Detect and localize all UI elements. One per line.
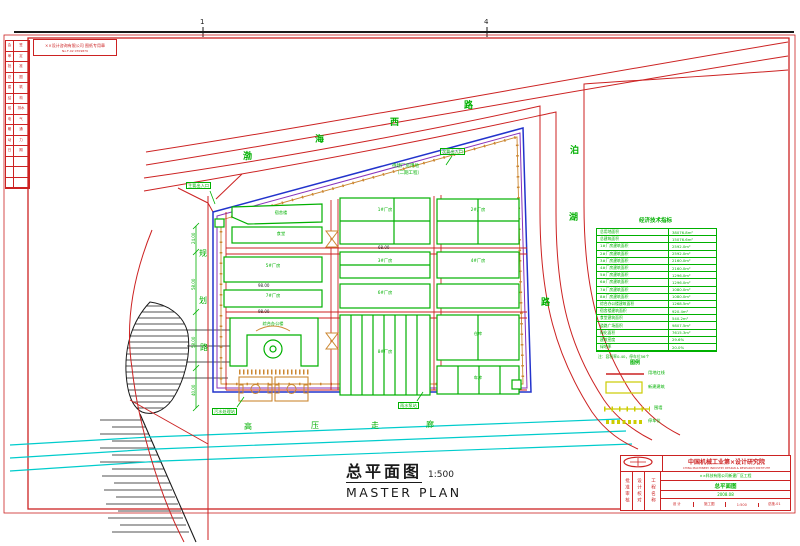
company-name: 中国机械工业第×设计研究院 [688,457,765,466]
rev-cell [14,167,29,177]
econ-row: 绿化面积7615.3m² [597,330,716,337]
meta-cell: 1:500 [726,503,759,507]
company-logo [621,456,663,471]
building-label-b5: 5#厂房 [266,264,281,268]
meta-cell: 总施-01 [759,502,791,507]
title-block: 中国机械工业第×设计研究院 CHINA MACHINERY INDUSTRY D… [620,455,791,511]
econ-row: 总建筑面积15076.6m² [597,236,716,243]
revision-row: 会签 [6,41,29,52]
dim-value: 58.00 [192,279,196,290]
road-name-char: 西 [390,119,399,128]
revision-table: 会签 审定 批准 总图 建筑 结构 给排水 电气 暖通 动力 日期 [5,40,30,189]
econ-label: 绿地率 [597,344,668,350]
econ-table-title: 经济技术指标 [596,219,715,225]
sewage-station-label: 污水处理站 [212,408,237,415]
revision-row: 日期 [6,146,29,157]
main-title-scale: 1:500 [428,470,454,480]
econ-table-note: 注：容积率0.40，停车位56个 [598,355,649,359]
legend-symbols [604,374,650,422]
drawing-date: 2008.08 [661,491,790,499]
road-name-char: 湖 [569,214,578,223]
rev-cell: 筑 [14,83,29,93]
corridor-char: 压 [311,422,319,430]
rev-cell: 构 [14,94,29,104]
econ-row: 7#厂房建筑面积1080.0m² [597,287,716,294]
econ-row: 绿地率20.0% [597,344,716,351]
rev-cell: 审 [6,52,14,62]
econ-row: 总用地面积38076.8m² [597,229,716,236]
rev-cell: 排水 [14,104,29,114]
rev-cell [6,157,14,167]
building-label-garage: 车库 [474,376,482,380]
road-name-char: 划 [199,297,207,305]
revision-row: 总图 [6,73,29,84]
econ-label: 1#厂房建筑面积 [597,243,668,249]
company-name-en: CHINA MACHINERY INDUSTRY DESIGN & RESEAR… [683,466,770,470]
econ-value: 2592.0m² [668,243,716,249]
rev-cell: 建 [6,83,14,93]
building-label-warehouse: 仓库 [474,332,482,336]
stamp-strip: ××设计咨询有限公司 图纸专用章 No.F-02 0709879 [33,39,117,56]
pump-station-label: 雨水泵站 [398,402,419,409]
building-label-b4: 4#厂房 [471,259,486,263]
rev-cell: 总 [6,73,14,83]
rev-cell: 期 [14,146,29,156]
title-block-header: 中国机械工业第×设计研究院 CHINA MACHINERY INDUSTRY D… [621,456,790,472]
rev-cell: 定 [14,52,29,62]
dim-value: 68.00 [378,246,389,250]
drawing-name: 总平面图 [661,481,790,491]
legend-item-label: 围墙 [654,406,662,410]
road-name-char: 泊 [570,147,579,156]
econ-label: 道路广场面积 [597,322,668,328]
drawing-sheet: 1 4 ××设计咨询有限公司 图纸专用章 No.F-02 0709879 会签 … [0,0,800,546]
econ-value: 15076.6m² [668,236,716,242]
econ-row: 5#厂房建筑面积1296.0m² [597,272,716,279]
rev-cell: 准 [14,62,29,72]
econ-label: 2#厂房建筑面积 [597,251,668,257]
legend-item-label: 停车位 [648,419,661,423]
econ-label: 宿舍楼建筑面积 [597,308,668,314]
meta-cell: 施工图 [694,502,727,507]
building-label-b2: 2#厂房 [471,208,486,212]
econ-label: 食堂建筑面积 [597,315,668,321]
stamp-line2: No.F-02 0709879 [62,49,88,53]
entrance-main-label: 主要出入口 [186,182,211,189]
rev-cell: 给 [6,104,14,114]
building-label-b1: 1#厂房 [378,208,393,212]
building-label-b3: 3#厂房 [378,259,393,263]
rev-cell [6,167,14,177]
revision-row: 给排水 [6,104,29,115]
econ-value: 20.0% [668,344,716,350]
legend-item-label: 用地红线 [648,371,665,375]
econ-row: 3#厂房建筑面积2160.0m² [597,258,716,265]
meta-cell: 设 计 [661,502,694,507]
main-title: 总平面图1:500 MASTER PLAN [346,458,486,500]
corridor-char: 廊 [426,421,434,429]
logo-ellipse-icon [621,456,655,468]
econ-value: 9807.5m² [668,322,716,328]
rev-cell: 结 [6,94,14,104]
building-label-b8: 8#厂房 [378,350,393,354]
econ-row: 8#厂房建筑面积1080.0m² [597,294,716,301]
econ-value: 1296.0m² [668,279,716,285]
dim-value: 24.00 [192,233,196,244]
legend-title: 图例 [630,361,640,366]
rev-cell: 电 [6,115,14,125]
rev-cell: 批 [6,62,14,72]
econ-row: 建筑密度29.6% [597,337,716,344]
road-name-char: 路 [200,344,208,352]
building-label-b6: 6#厂房 [378,291,393,295]
revision-row: 暖通 [6,125,29,136]
main-title-en: MASTER PLAN [346,485,486,500]
building-label-dorm: 宿舍楼 [275,211,288,215]
fold-mark-2: 4 [484,19,488,26]
econ-row: 宿舍楼建筑面积920.4m² [597,308,716,315]
revision-row [6,157,29,168]
drawing-meta-row: 设 计 施工图 1:500 总施-01 [661,499,790,510]
revision-row: 电气 [6,115,29,126]
econ-value: 2160.0m² [668,258,716,264]
econ-row: 食堂建筑面积540.2m² [597,315,716,322]
dim-value: 58.00 [192,337,196,348]
econ-row: 4#厂房建筑面积2160.0m² [597,265,716,272]
phase2-note: （二期工程） [395,172,422,177]
main-title-zh: 总平面图 [346,462,422,483]
high-voltage-corridor-lines [10,419,632,471]
econ-value: 38076.8m² [668,229,716,235]
building-label-b7: 7#厂房 [266,294,281,298]
rev-cell [14,157,29,167]
rev-cell [6,178,14,188]
corridor-char: 高 [244,423,252,431]
econ-row: 道路广场面积9807.5m² [597,322,716,329]
buildings [215,198,521,395]
road-name-char: 规 [199,250,207,258]
econ-row: 综合办公楼建筑面积1268.5m² [597,301,716,308]
econ-label: 综合办公楼建筑面积 [597,301,668,307]
entrance-secondary-label: 次要出入口 [440,148,465,155]
econ-label: 总用地面积 [597,229,668,235]
econ-table: 总用地面积38076.8m² 总建筑面积15076.6m² 1#厂房建筑面积25… [596,228,717,352]
econ-row: 1#厂房建筑面积2592.0m² [597,243,716,250]
rev-cell: 日 [6,146,14,156]
dim-value: 98.00 [258,310,269,314]
econ-value: 7615.3m² [668,330,716,336]
corridor-char: 走 [371,422,379,430]
rev-cell: 力 [14,136,29,146]
revision-row: 建筑 [6,83,29,94]
econ-label: 4#厂房建筑面积 [597,265,668,271]
title-block-body: 批准审核 设计校对 工程名称 ××科技有限公司新建厂区工程 总平面图 2008.… [621,472,790,510]
econ-label: 绿化面积 [597,330,668,336]
rev-cell: 动 [6,136,14,146]
econ-value: 920.4m² [668,308,716,314]
dim-value: 40.00 [192,385,196,396]
dim-value: 98.00 [258,284,269,288]
legend-item-label: 新建建筑 [648,385,665,389]
econ-label: 8#厂房建筑面积 [597,294,668,300]
econ-label: 建筑密度 [597,337,668,343]
fold-mark-1: 1 [200,19,204,26]
project-name-column: 工程名称 [645,472,661,510]
econ-value: 1268.5m² [668,301,716,307]
rev-cell: 签 [14,41,29,51]
econ-value: 1296.0m² [668,272,716,278]
econ-value: 29.6% [668,337,716,343]
econ-label: 7#厂房建筑面积 [597,287,668,293]
rev-cell: 暖 [6,125,14,135]
road-name-char: 路 [541,299,550,308]
revision-row: 审定 [6,52,29,63]
econ-value: 540.2m² [668,315,716,321]
rev-cell [14,178,29,188]
terrain-hatch [100,302,232,542]
revision-row [6,178,29,189]
revision-row: 动力 [6,136,29,147]
econ-row: 2#厂房建筑面积2592.0m² [597,251,716,258]
econ-value: 1080.0m² [668,287,716,293]
econ-label: 6#厂房建筑面积 [597,279,668,285]
project-name: ××科技有限公司新建厂区工程 [661,472,790,481]
revision-row [6,167,29,178]
econ-value: 2160.0m² [668,265,716,271]
rev-cell: 气 [14,115,29,125]
road-name-char: 海 [315,136,324,145]
econ-label: 3#厂房建筑面积 [597,258,668,264]
design-column: 设计校对 [633,472,645,510]
econ-value: 2592.0m² [668,251,716,257]
rev-cell: 会 [6,41,14,51]
road-name-char: 渤 [243,153,252,162]
building-label-canteen: 食堂 [277,232,285,236]
rev-cell: 图 [14,73,29,83]
phase2-note: 待建厂房用地 [392,165,419,170]
econ-row: 6#厂房建筑面积1296.0m² [597,279,716,286]
econ-label: 5#厂房建筑面积 [597,272,668,278]
title-block-right: ××科技有限公司新建厂区工程 总平面图 2008.08 设 计 施工图 1:50… [661,472,790,510]
revision-row: 批准 [6,62,29,73]
road-name-char: 路 [464,102,473,111]
rev-cell: 通 [14,125,29,135]
econ-value: 1080.0m² [668,294,716,300]
approval-column: 批准审核 [621,472,633,510]
revision-row: 结构 [6,94,29,105]
company-cell: 中国机械工业第×设计研究院 CHINA MACHINERY INDUSTRY D… [663,456,790,471]
econ-label: 总建筑面积 [597,236,668,242]
building-label-office: 综合办公楼 [263,322,284,326]
